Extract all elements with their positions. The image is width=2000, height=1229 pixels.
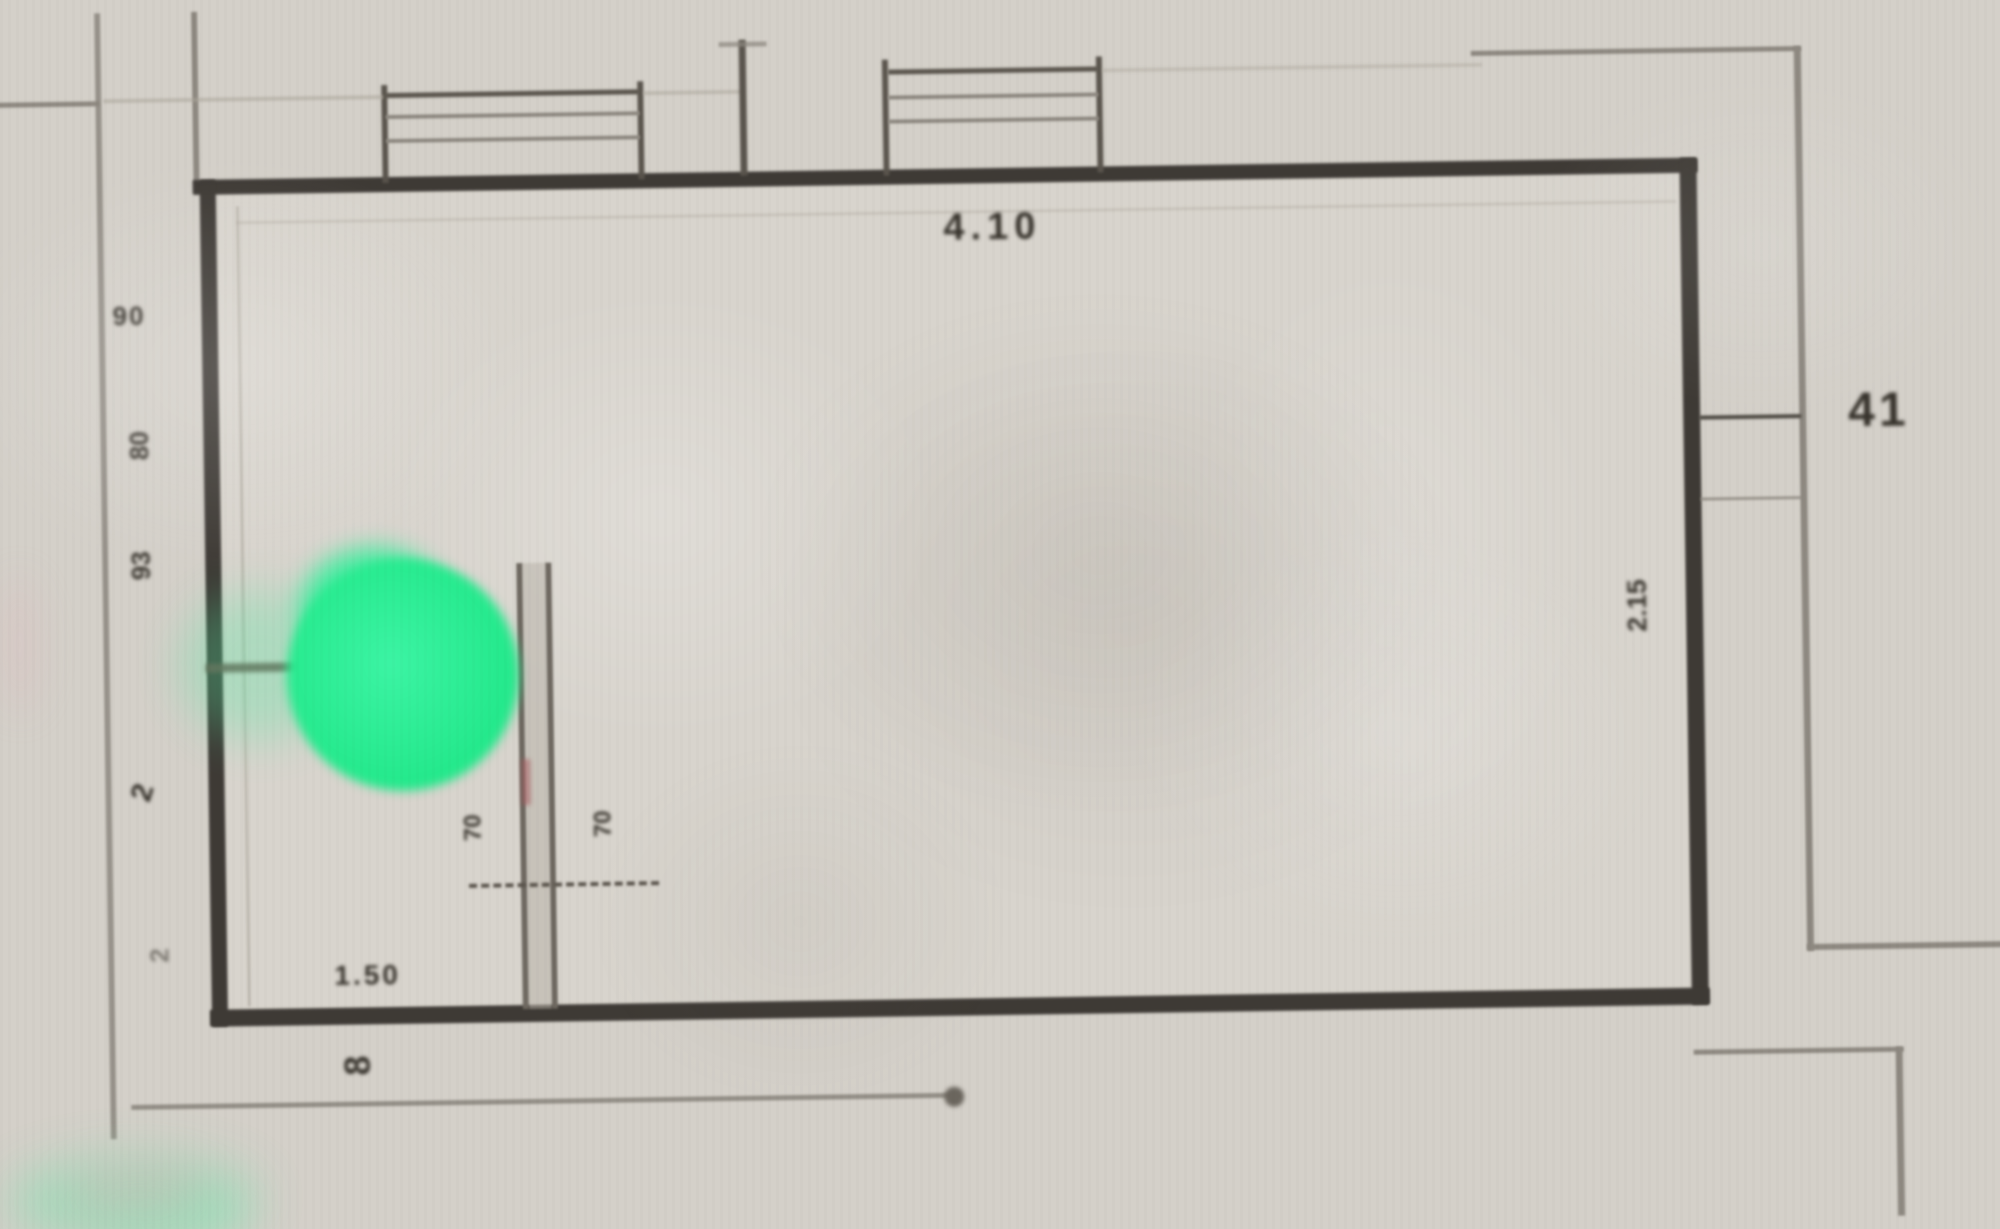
window-b-sill-outer <box>888 66 1098 74</box>
dim-left-1: 90 <box>112 303 145 329</box>
window-a-jamb-right <box>637 81 644 179</box>
facade-line-left-of-window-a <box>103 95 383 103</box>
exterior-wall-line-top-right <box>1471 46 1801 56</box>
plan-layer: 4.10 41 2.15 1.50 8 90 80 93 2 2 70 70 <box>0 0 2000 1229</box>
window-b-sill-inner <box>889 116 1099 123</box>
dim-left-3: 93 <box>128 551 154 580</box>
terrace-line-right-down <box>1896 1047 1906 1216</box>
exterior-wall-line-bottom-right <box>1807 941 2000 950</box>
pink-smudge-left <box>0 574 40 715</box>
dim-line-right-upper <box>1699 414 1801 420</box>
terrace-line-endcap <box>944 1087 964 1107</box>
terrace-line-bottom-right <box>1694 1047 1904 1055</box>
dim-left-5: 2 <box>146 948 172 963</box>
window-b-sill-mid <box>888 92 1098 99</box>
window-a-sill-mid <box>386 111 640 119</box>
facade-line-right-of-window-a <box>643 90 743 95</box>
floor-plan-scan: 4.10 41 2.15 1.50 8 90 80 93 2 2 70 70 <box>0 0 2000 1229</box>
facade-pier-tick <box>719 41 767 47</box>
facade-line-right-of-window-b <box>1102 63 1482 73</box>
dim-line-right-lower <box>1700 496 1802 501</box>
window-a-jamb-left <box>381 85 388 183</box>
dim-bottom-left-width: 1.50 <box>334 961 401 990</box>
dim-door-right: 70 <box>591 810 615 837</box>
exterior-wall-line-top-left <box>0 101 99 108</box>
dim-bottom-left-tick: 8 <box>340 1055 376 1076</box>
window-a-sill-outer <box>385 89 639 98</box>
dim-door-left: 70 <box>461 814 485 841</box>
window-b-jamb-left <box>882 60 890 176</box>
dim-left-2: 80 <box>126 431 152 460</box>
dim-right-height: 2.15 <box>1623 550 1665 661</box>
terrace-line-bottom <box>131 1093 959 1110</box>
dim-right-offset: 41 <box>1848 386 1910 435</box>
facade-pier-line <box>739 40 748 176</box>
window-b-jamb-right <box>1096 56 1104 172</box>
exterior-wall-line-left <box>94 13 117 1139</box>
dim-top-width: 4.10 <box>943 207 1042 246</box>
window-a-sill-inner <box>386 135 640 143</box>
dim-left-4: 2 <box>126 780 160 805</box>
survey-tick-red <box>521 759 531 805</box>
